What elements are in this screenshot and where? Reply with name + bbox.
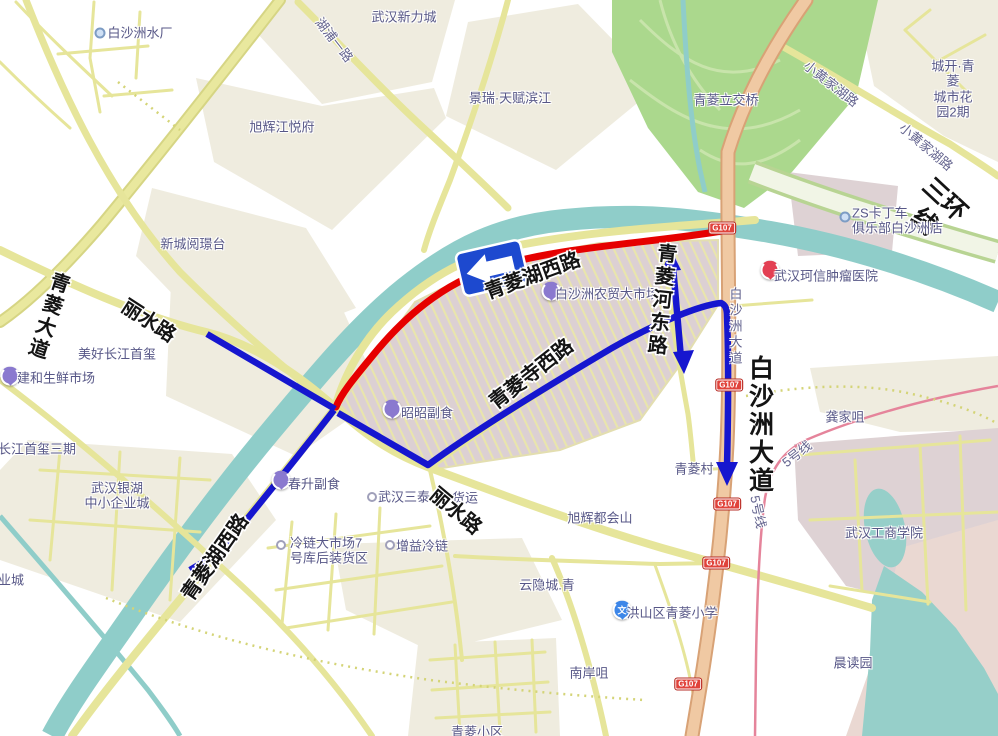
route-shield-g107: G107	[674, 678, 702, 691]
dot-marker[interactable]	[840, 212, 851, 223]
map-label[interactable]: 小黄家湖路	[896, 120, 956, 174]
pin-purple-marker[interactable]	[383, 400, 402, 419]
dot-marker[interactable]	[95, 28, 106, 39]
map-label[interactable]: 白沙洲水厂	[107, 25, 172, 40]
map-label[interactable]: 旭辉江悦府	[249, 119, 314, 134]
map-label[interactable]: 景瑞·天赋滨江	[469, 90, 551, 105]
map-label[interactable]: 青菱湖西路	[178, 510, 255, 605]
map-label[interactable]: 城开·青菱 城市花园2期	[931, 58, 976, 119]
map-label[interactable]: ZS卡丁车 俱乐部白沙洲店	[852, 206, 943, 237]
map-label[interactable]: 龚家咀	[825, 409, 864, 424]
map-label[interactable]: 建和生鲜市场	[17, 370, 95, 385]
map-label[interactable]: 小黄家湖路	[801, 58, 862, 110]
map-label[interactable]: 增益冷链	[396, 538, 448, 553]
map-label[interactable]: 武汉银湖 中小企业城	[84, 481, 149, 512]
map-label[interactable]: 武汉新力城	[371, 9, 436, 24]
route-shield-g107: G107	[713, 498, 741, 511]
map-label[interactable]: 南岸咀	[569, 665, 608, 680]
map-label[interactable]: 丽水路	[116, 296, 179, 348]
map-label[interactable]: 湖浦一路	[312, 15, 356, 65]
map-label[interactable]: 白沙洲大道	[747, 355, 772, 495]
map-label[interactable]: 青菱河东路	[644, 242, 676, 358]
map-label[interactable]: 武汉三泰	[378, 489, 430, 504]
map-label[interactable]: 青菱立交桥	[693, 92, 758, 107]
map-label[interactable]: 白沙洲大道	[729, 287, 742, 367]
map-label[interactable]: 洪山区青菱小学	[626, 605, 717, 620]
route-shield-g107: G107	[702, 557, 730, 570]
ring-marker[interactable]	[385, 540, 395, 550]
map-label[interactable]: 晨读园	[833, 655, 872, 670]
map-label[interactable]: 昭昭副食	[401, 405, 453, 420]
map-label[interactable]: 武汉珂信肿瘤医院	[774, 268, 878, 283]
map-overlay: 白沙洲水厂武汉新力城湖浦一路景瑞·天赋滨江旭辉江悦府新城阅璟台青菱立交桥小黄家湖…	[0, 0, 998, 736]
map-label[interactable]: 业城	[0, 572, 24, 587]
map-label[interactable]: 旭辉都会山	[567, 510, 632, 525]
map-label[interactable]: 青菱大道	[23, 269, 70, 363]
ring-marker[interactable]	[367, 492, 377, 502]
map-label[interactable]: 长江首玺三期	[0, 441, 76, 456]
map-label[interactable]: 冷链大市场7 号库后装货区	[290, 536, 368, 567]
map-label[interactable]: 青菱村	[674, 461, 713, 476]
map-label[interactable]: 美好长江首玺	[78, 346, 156, 361]
map-label[interactable]: 白沙洲农贸大市场	[555, 286, 659, 301]
ring-marker[interactable]	[276, 540, 286, 550]
map-label[interactable]: 青菱寺西路	[485, 335, 578, 415]
map-label[interactable]: 青菱小区	[451, 724, 503, 736]
map-canvas[interactable]: 白沙洲水厂武汉新力城湖浦一路景瑞·天赋滨江旭辉江悦府新城阅璟台青菱立交桥小黄家湖…	[0, 0, 998, 736]
route-shield-g107: G107	[715, 379, 743, 392]
map-label[interactable]: 5号线	[779, 438, 815, 471]
map-label[interactable]: 云隐城.青	[519, 577, 575, 592]
map-label[interactable]: 5号线	[747, 494, 769, 530]
map-label[interactable]: 武汉工商学院	[845, 525, 923, 540]
map-label[interactable]: 春升副食	[288, 476, 340, 491]
route-shield-g107: G107	[708, 222, 736, 235]
map-label[interactable]: 新城阅璟台	[160, 236, 225, 251]
